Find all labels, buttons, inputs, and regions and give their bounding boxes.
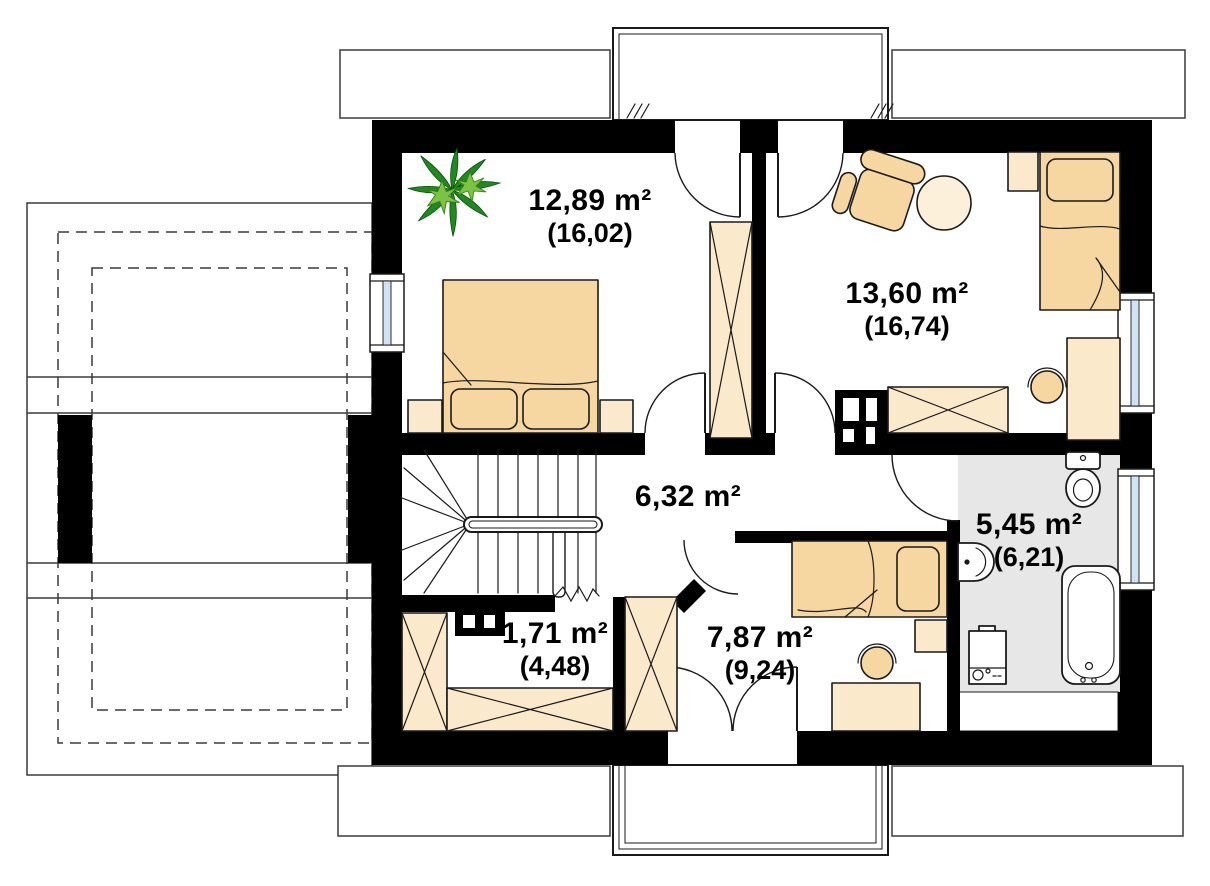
room-gross: (4,48) [502,651,608,681]
desk [1067,338,1120,440]
annex-wall [348,415,372,563]
plant-icon [408,148,500,237]
bathroom-door [892,455,958,521]
roof-eave [892,50,1185,118]
bedroom-2-door [775,373,835,433]
roof-eave [338,766,610,836]
single-bed [792,541,947,617]
room-area: 5,45 m² [976,508,1082,542]
room-area: 1,71 m² [502,617,608,651]
room-label-bedroom-2: 13,60 m² (16,74) [845,277,968,341]
room-area: 7,87 m² [707,621,813,655]
room-gross: (16,74) [845,311,968,341]
nightstand [915,620,947,652]
nightstand [1008,152,1038,191]
partition-wall [752,153,766,455]
floor-plan: 12,89 m² (16,02) 13,60 m² (16,74) 6,32 m… [0,0,1210,886]
roof-eave [892,766,1183,836]
nightstand [408,400,442,433]
room-label-storage: 1,71 m² (4,48) [502,617,608,681]
wardrobe [447,688,613,731]
room-label-hall: 6,32 m² [635,480,741,514]
desk-chair [1028,368,1066,403]
room-gross: (16,02) [528,218,651,248]
balcony-door-left [675,153,740,217]
floor-plan-drawing [0,0,1210,886]
room-gross: (9,24) [707,655,813,685]
nightstand [600,400,633,433]
room-label-bedroom-1: 12,89 m² (16,02) [528,184,651,248]
room-label-bathroom: 5,45 m² (6,21) [976,508,1082,572]
wardrobe [710,222,752,438]
roof-eave [340,50,610,118]
bedroom-1-door [645,373,705,433]
double-bed [443,280,598,433]
wardrobe [625,597,677,731]
window [1118,469,1154,590]
balcony-bottom [613,765,888,855]
roof-annex-left [27,203,372,775]
room-label-bedroom-3: 7,87 m² (9,24) [707,621,813,685]
chimney [455,610,505,636]
room-area: 12,89 m² [528,184,651,218]
window [1118,293,1154,413]
single-bed [1040,152,1120,310]
wardrobe [888,387,1008,433]
toilet [1066,452,1100,507]
stairs [402,450,602,601]
knee-wall-niche [958,692,1118,731]
armchair [830,143,927,235]
round-table [917,176,971,230]
room-area: 6,32 m² [635,480,741,514]
winder-treads [402,450,470,593]
handrail [464,517,602,532]
room-area: 13,60 m² [845,277,968,311]
wardrobe [402,613,447,731]
balcony-top [613,28,893,120]
chimney [835,390,890,455]
annex-wall [58,415,92,563]
washing-machine [969,626,1006,684]
handrail-post [553,524,565,597]
desk [832,683,920,731]
window [370,274,404,352]
bathtub [1062,566,1120,684]
room-gross: (6,21) [976,542,1082,572]
desk-chair [858,644,896,679]
